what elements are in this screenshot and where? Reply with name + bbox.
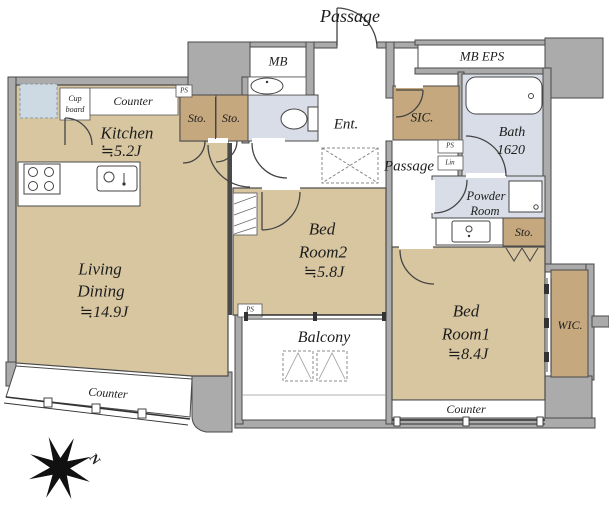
kitchen-size-label: ≒5.2J (101, 144, 142, 160)
kitchen-sink-icon (97, 166, 137, 191)
room-bed1 (392, 247, 545, 400)
toilet-door (252, 143, 287, 178)
compass-icon (29, 437, 91, 499)
bed2-closet (233, 193, 257, 235)
entrance-label: Ent. (334, 118, 359, 133)
bed1-counter-label: Counter (446, 403, 485, 415)
entrance-floor-mark (322, 148, 378, 183)
sic-label: SIC. (411, 111, 434, 124)
wic-label: WIC. (558, 319, 583, 331)
ps-label-1: PS (180, 88, 188, 95)
cupboard-label-2: board (66, 106, 85, 114)
fridge-space (20, 84, 57, 118)
bed1-size-label: ≒8.4J (448, 347, 489, 363)
kitchen-label: Kitchen (101, 125, 154, 142)
ps-label-2: PS (446, 143, 454, 150)
sto1-label: Sto. (188, 112, 206, 124)
lin-label: Lin (445, 160, 454, 167)
bed2-size-label: ≒5.8J (304, 265, 345, 281)
cupboard-box (60, 88, 90, 120)
bed1-label-1: Bed (453, 303, 479, 320)
ld-counter-label: Counter (88, 386, 128, 401)
living-label-1: Living (78, 261, 121, 278)
mb-eps-label: MB EPS (460, 50, 504, 63)
toilet-icon (281, 107, 318, 131)
living-size-label: ≒14.9J (80, 305, 129, 321)
washing-machine-icon (509, 181, 542, 212)
bathtub-icon (466, 77, 542, 114)
sto3-label: Sto. (515, 226, 533, 238)
stove-icon (24, 164, 60, 194)
bed2-label-2: Room2 (299, 244, 347, 261)
powder-sink-icon (452, 221, 490, 242)
mb-label: MB (269, 55, 288, 68)
passage-inner-label: Passage (384, 160, 434, 175)
basin-icon (251, 78, 283, 94)
ps-label-3: PS (246, 307, 254, 314)
powder-label-2: Room (470, 205, 499, 218)
pillar (192, 372, 232, 432)
cupboard-label-1: Cup (68, 95, 81, 103)
bath-label: Bath (499, 126, 525, 140)
bed2-label-1: Bed (309, 221, 335, 238)
passage-top-label: Passage (320, 7, 380, 25)
powder-label-1: Powder (467, 190, 506, 203)
wic-sliding-door (544, 278, 551, 372)
floor-plan: Passage MB MB EPS Cup board Counter PS S… (0, 0, 609, 505)
sto2-label: Sto. (222, 112, 240, 124)
kitchen-counter-label: Counter (113, 95, 152, 107)
bed1-label-2: Room1 (442, 326, 490, 343)
balcony-label: Balcony (298, 330, 350, 346)
living-label-2: Dining (77, 283, 124, 300)
bath-size-label: 1620 (497, 144, 525, 158)
